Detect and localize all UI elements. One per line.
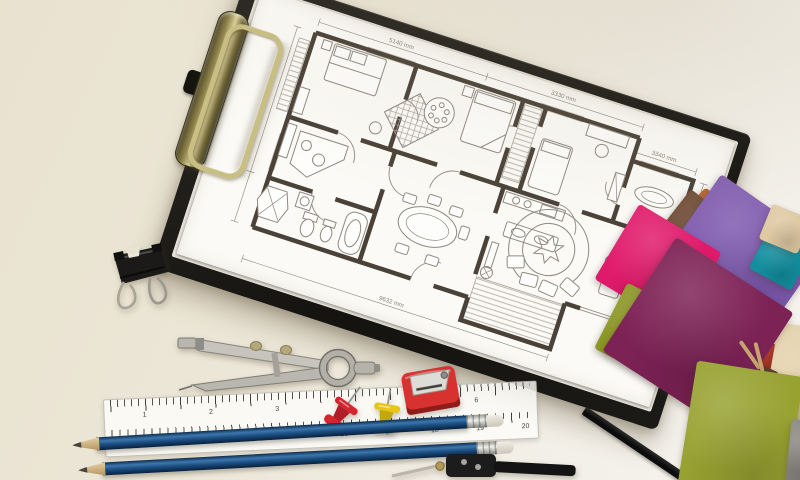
swatch-olive-front [676,360,800,480]
pencil-eraser [486,414,504,427]
binder-clip [100,238,178,318]
dim-label-bottom: 9632 mm [378,295,405,310]
pencil-lead [72,442,81,449]
pencil-ferrule [466,414,488,428]
divider-compass-black [388,448,580,480]
dim-label-top-left: 5140 mm [388,37,415,52]
desk-surface: 5140 mm 3330 mm 3340 mm 9632 mm 1730 mm … [0,0,800,480]
pencil-lead [78,467,87,473]
dim-label-top-right: 3330 mm [550,89,577,104]
dim-label-annex: 3340 mm [651,150,678,165]
